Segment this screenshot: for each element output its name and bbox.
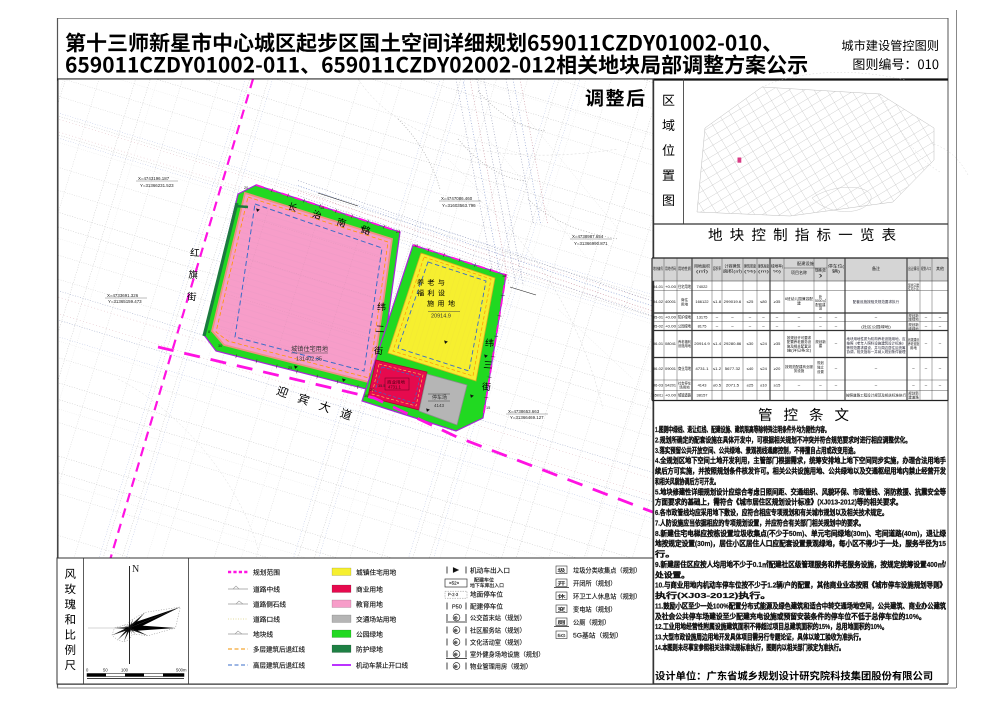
svg-text:规划人口: 规划人口: [921, 266, 931, 271]
svg-text:P·2·3: P·2·3: [448, 592, 459, 597]
svg-text:规划: 规划: [817, 360, 824, 365]
svg-text:地下车库出入口: 地下车库出入口: [470, 582, 504, 589]
svg-text:≤1.8: ≤1.8: [713, 300, 721, 304]
svg-text:高层建筑后退红线: 高层建筑后退红线: [253, 660, 306, 669]
svg-text:%): %): [773, 268, 782, 273]
svg-text:交通场站用地: 交通场站用地: [356, 614, 397, 623]
svg-text:环卫工人休息站（规划）: 环卫工人休息站（规划）: [573, 591, 641, 600]
svg-text:变: 变: [558, 606, 567, 613]
svg-text:按照《老年人照料设施建筑设计标准》: 按照《老年人照料设施建筑设计标准》: [847, 340, 906, 345]
svg-text:4143: 4143: [434, 403, 445, 408]
svg-text:Y=31366990.871: Y=31366990.871: [574, 241, 608, 246]
svg-text:100: 100: [121, 668, 129, 673]
svg-text:×52×: ×52×: [449, 581, 460, 586]
svg-text:Y=31366469.127: Y=31366469.127: [510, 415, 544, 420]
svg-text:住宅用地: 住宅用地: [678, 284, 691, 289]
svg-text:20: 20: [244, 186, 248, 190]
svg-text:35.5: 35.5: [378, 384, 385, 388]
svg-text:开闭所（规划）: 开闭所（规划）: [573, 578, 616, 587]
svg-text:用地性质: 用地性质: [678, 266, 691, 271]
svg-text:公园绿地: 公园绿地: [356, 629, 383, 638]
svg-text:多层建筑后退红线: 多层建筑后退红线: [253, 644, 306, 653]
svg-text:用地: 用地: [910, 345, 918, 350]
svg-text:38157: 38157: [697, 394, 708, 398]
svg-text:辆): 辆): [832, 268, 841, 273]
svg-text:X=4747086.460: X=4747086.460: [441, 196, 473, 201]
svg-text:社区服务站（规划）: 社区服务站（规划）: [470, 625, 526, 634]
svg-text:处设置。: 处设置。: [654, 570, 690, 579]
svg-text:+0.00: +0.00: [665, 394, 676, 398]
svg-text:X=4738987.654: X=4738987.654: [572, 234, 604, 239]
svg-text:(社区公园绿地): (社区公园绿地): [861, 324, 890, 329]
svg-text:≤25: ≤25: [747, 384, 754, 388]
svg-text:变电站（规划）: 变电站（规划）: [573, 604, 616, 613]
svg-text:用地代码: 用地代码: [665, 266, 676, 271]
svg-text:10: 10: [364, 394, 368, 398]
svg-text:8: 8: [208, 330, 210, 334]
svg-text:04-01: 04-01: [653, 285, 663, 289]
svg-text:(%): (%): [744, 268, 757, 273]
svg-text:城镇住宅用地: 城镇住宅用地: [356, 567, 397, 576]
svg-text:14.本图则未尽事宜参照相关法律法规标准执行，图则内以相关部: 14.本图则未尽事宜参照相关法律法规标准执行，图则内以相关部门核定为准执行。: [655, 643, 844, 652]
svg-text:6.各市政管线均应采用地下敷设，应符合相应专项规划和有关城市: 6.各市政管线均应采用地下敷设，应符合相应专项规划和有关城市规划以及相关技术规定…: [655, 508, 888, 517]
svg-text:50: 50: [103, 668, 108, 673]
svg-text:≥35: ≥35: [774, 300, 781, 304]
svg-text:用地: 用地: [681, 302, 689, 307]
svg-text:Y=31366231.523: Y=31366231.523: [140, 183, 174, 188]
svg-text:24: 24: [396, 230, 400, 234]
svg-text:≥20: ≥20: [774, 367, 781, 371]
svg-text:务设施: 务设施: [794, 368, 805, 373]
svg-text:29280.86: 29280.86: [724, 342, 742, 346]
svg-text:机动车禁止开口线: 机动车禁止开口线: [356, 660, 409, 669]
svg-text:城镇道路: 城镇道路: [678, 393, 691, 398]
svg-text:08041: 08041: [665, 342, 676, 346]
svg-text:教育用地: 教育用地: [356, 599, 383, 608]
svg-text:166122: 166122: [695, 300, 708, 304]
svg-text:X=4733691.326: X=4733691.326: [107, 293, 139, 298]
svg-text:≥15: ≥15: [774, 384, 781, 388]
svg-text:15: 15: [320, 206, 324, 210]
svg-text:5.地块修建性详细规划设计应综合考虑日照间距、交通组织、风貌: 5.地块修建性详细规划设计应综合考虑日照间距、交通组织、风貌环保、市政管线、消防…: [655, 487, 947, 496]
svg-text:≤30: ≤30: [747, 342, 754, 346]
svg-text:⊕: ⊕: [454, 652, 458, 658]
svg-text:06-01: 06-01: [653, 342, 663, 346]
svg-text:4731.1: 4731.1: [695, 367, 708, 371]
svg-text:行。: 行。: [654, 550, 676, 559]
svg-text:06-03: 06-03: [653, 384, 663, 388]
svg-text:6班幼儿园兼容配: 6班幼儿园兼容配: [785, 296, 814, 301]
svg-text:04-02: 04-02: [653, 300, 663, 304]
svg-text:X=4743196.187: X=4743196.187: [138, 176, 170, 181]
svg-text:10.与商业用地内机动车停车位按不少于1.2辆/户的配置，其: 10.与商业用地内机动车停车位按不少于1.2辆/户的配置，其他商业业态按照《城市…: [655, 581, 946, 590]
svg-text:8175: 8175: [698, 325, 707, 329]
svg-text:131402.35: 131402.35: [296, 357, 322, 363]
svg-text:N: N: [132, 564, 139, 575]
svg-text:(m): (m): [758, 268, 770, 273]
svg-text:停车场: 停车场: [432, 394, 447, 401]
svg-text:⊕: ⊕: [454, 640, 458, 646]
svg-text:防护绿地: 防护绿地: [356, 644, 383, 653]
svg-text:05-01: 05-01: [653, 316, 663, 320]
svg-text:其他: 其他: [936, 266, 944, 271]
svg-text:项目名称: 项目名称: [791, 270, 807, 275]
svg-text:道路中线: 道路中线: [253, 584, 281, 593]
svg-text:文化活动室（规划）: 文化活动室（规划）: [470, 637, 526, 646]
svg-text:5677.32: 5677.32: [725, 367, 740, 371]
svg-text:地块用地性质为机构养老设施用地，应: 地块用地性质为机构养老设施用地，应: [847, 336, 907, 341]
svg-text:4731.1: 4731.1: [388, 385, 401, 390]
svg-text:13.大型市政设施周边用地开发具体项目需另行专题论证，具体以: 13.大型市政设施周边用地开发具体项目需另行专题论证，具体以竣工验收为准执行。: [655, 633, 865, 642]
svg-text:659011: 659011: [653, 394, 663, 398]
svg-text:(㎡): (㎡): [696, 268, 709, 273]
svg-text:≤24: ≤24: [760, 342, 767, 346]
svg-text:配建设施: 配建设施: [797, 261, 814, 266]
svg-text:7.人防设施应当依据相应的专项规划设置，并应符合有关部门相关: 7.人防设施应当依据相应的专项规划设置，并应符合有关部门相关规划中的要求。: [655, 518, 865, 527]
svg-text:⊕: ⊕: [454, 616, 458, 622]
svg-text:建: 建: [797, 301, 801, 306]
svg-text:05-02: 05-02: [653, 325, 663, 329]
svg-text:防护绿地: 防护绿地: [678, 315, 691, 320]
svg-text:2.规划所确定的配套设施在具体开发中，可根据相关规划不冲突并: 2.规划所确定的配套设施在具体开发中，可根据相关规划不冲突并符合规范要求时进行相…: [655, 435, 911, 444]
svg-text:及社会公共停车场建设至少配建充电设施或预留安装条件的停车位不: 及社会公共停车场建设至少配建充电设施或预留安装条件的停车位不低于总停车位的10%…: [655, 612, 926, 621]
svg-text:20: 20: [370, 388, 374, 392]
svg-text:商业用地: 商业用地: [678, 366, 691, 371]
svg-text:≤0.5: ≤0.5: [713, 384, 721, 388]
svg-text:面积(㎡): 面积(㎡): [723, 268, 743, 273]
svg-text:3.落实预留公共开放空间、公共绿地、景观视线通廊控制，不得擅: 3.落实预留公共开放空间、公共绿地、景观视线通廊控制，不得擅自占用或改变用途。: [655, 446, 859, 455]
svg-text:地面停车位: 地面停车位: [470, 589, 504, 598]
svg-text:4143: 4143: [698, 384, 707, 388]
svg-text:规划范围: 规划范围: [253, 567, 280, 576]
svg-text:室外健身场地设施（规划）: 室外健身场地设施（规划）: [470, 649, 544, 658]
svg-text:+0.00: +0.00: [665, 316, 676, 320]
svg-text:≤1.2: ≤1.2: [713, 367, 721, 371]
svg-text:增绿地: 增绿地: [908, 326, 919, 331]
svg-text:≤80: ≤80: [760, 300, 767, 304]
svg-text:公交首末站（规划）: 公交首末站（规划）: [470, 613, 526, 622]
svg-text:11.鼓励小区至少一处100%配置分布式能源及绿色建筑和适合: 11.鼓励小区至少一处100%配置分布式能源及绿色建筑和适合中转交通场地空间，公…: [655, 602, 947, 611]
svg-text:设置: 设置: [817, 369, 824, 374]
svg-text:2071.5: 2071.5: [726, 384, 739, 388]
svg-text:≤1.4: ≤1.4: [713, 342, 721, 346]
svg-text:74022: 74022: [697, 285, 708, 289]
svg-text:20914.9: 20914.9: [431, 314, 451, 320]
svg-text:续后方可实施，并按照规划条件核发许可。相关公共设施用地、公共: 续后方可实施，并按照规划条件核发许可。相关公共设施用地、公共绿地以及交通枢纽用地…: [655, 467, 947, 476]
svg-text:≤10: ≤10: [760, 384, 767, 388]
svg-text:物业管理用房（规划）: 物业管理用房（规划）: [470, 661, 532, 670]
svg-text:≤24: ≤24: [760, 367, 767, 371]
svg-text:9.新建居住区应按人均用地不少于0.1㎡配建社区级管理服务和: 9.新建居住区应按人均用地不少于0.1㎡配建社区级管理服务和养老服务设施，按规定…: [655, 560, 946, 569]
svg-text:15: 15: [486, 406, 490, 410]
svg-text:299019.6: 299019.6: [724, 300, 742, 304]
svg-text:≤25: ≤25: [747, 300, 754, 304]
svg-text:20914.9: 20914.9: [694, 342, 709, 346]
svg-text:备注: 备注: [872, 266, 880, 271]
svg-text:13175: 13175: [697, 316, 708, 320]
svg-text:≤40: ≤40: [747, 367, 754, 371]
svg-text:06-02: 06-02: [653, 367, 663, 371]
svg-text:和相关风貌协调后方可开发。: 和相关风貌协调后方可开发。: [654, 477, 719, 486]
svg-text:道路口线: 道路口线: [253, 614, 281, 623]
svg-text:等规范要求建设，并与周边居住区统筹: 等规范要求建设，并与周边居住区统筹: [847, 345, 907, 350]
svg-text:协调，相关指标一并纳入规划条件管理: 协调，相关指标一并纳入规划条件管理: [847, 349, 907, 354]
svg-text:X=4738653.663: X=4738653.663: [508, 409, 540, 414]
svg-text:5G基站（规划）: 5G基站（规划）: [573, 630, 623, 639]
svg-text:1.图则中绿线、退让红线、配建设施、建筑限高等除特殊注明条件: 1.图则中绿线、退让红线、配建设施、建筑限高等除特殊注明条件外均为刚性内容。: [655, 425, 830, 434]
svg-text:方面要求的基础上，需符合《城市居住区规划设计标准》(XJ01: 方面要求的基础上，需符合《城市居住区规划设计标准》(XJ013-2012)等的相…: [655, 498, 902, 507]
svg-text:12: 12: [414, 244, 418, 248]
svg-text:⊕: ⊕: [454, 664, 458, 670]
svg-text:住宅小区: 住宅小区: [908, 286, 919, 291]
svg-text:12.工业用地经营性附属设施建筑面积不得超过项目总建筑面积的: 12.工业用地经营性附属设施建筑面积不得超过项目总建筑面积的15%，总用地面积的…: [655, 622, 888, 631]
svg-text:4.全规划区地下空间土地开发利用，主管部门根据需求，统筹安排: 4.全规划区地下空间土地开发利用，主管部门根据需求，统筹安排地上地下空间同步实施…: [655, 456, 947, 465]
svg-text:独立: 独立: [817, 365, 824, 370]
svg-text:出让情况: 出让情况: [908, 266, 919, 271]
svg-text:5G: 5G: [558, 633, 567, 638]
svg-text:8.新建住宅电梯应按栋设置垃圾收集点(不少于50m)、单元宅: 8.新建住宅电梯应按栋设置垃圾收集点(不少于50m)、单元宅间绿地(30m)、宅…: [655, 529, 947, 538]
svg-text:18: 18: [502, 274, 506, 278]
svg-text:配套设施按相关规范要求执行: 配套设施按相关规范要求执行: [853, 299, 900, 304]
svg-text:地块编号: 地块编号: [653, 266, 663, 271]
svg-text:商住: 商住: [681, 297, 689, 302]
svg-text:容积率: 容积率: [713, 266, 721, 271]
svg-text:建道路: 建道路: [908, 394, 919, 399]
svg-text:道路侧石线: 道路侧石线: [253, 599, 287, 608]
svg-text:⊕: ⊕: [454, 628, 458, 634]
svg-text:场用地: 场用地: [679, 385, 690, 390]
svg-text:配建车位: 配建车位: [474, 577, 494, 584]
svg-text:机动车出入口: 机动车出入口: [470, 565, 510, 574]
svg-text:城镇住宅用地: 城镇住宅用地: [291, 345, 328, 353]
svg-text:设施用地: 设施用地: [678, 343, 691, 348]
svg-text:40001: 40001: [665, 300, 676, 304]
svg-text:S4201: S4201: [665, 384, 676, 388]
svg-text:公园绿地: 公园绿地: [678, 324, 691, 329]
svg-text:500m: 500m: [176, 668, 187, 673]
svg-text:25: 25: [288, 366, 292, 370]
svg-text:配建停车位: 配建停车位: [470, 601, 504, 610]
svg-text:+0.00: +0.00: [665, 325, 676, 329]
svg-text:+0.00: +0.00: [665, 285, 676, 289]
svg-text:09001: 09001: [665, 367, 676, 371]
svg-text:施(详见条文): 施(详见条文): [787, 348, 811, 353]
svg-text:商业用地: 商业用地: [356, 584, 383, 593]
svg-text:公厕（规划）: 公厕（规划）: [573, 617, 610, 626]
svg-text:圾: 圾: [558, 567, 567, 574]
svg-text:Y=31365159.473: Y=31365159.473: [108, 299, 142, 304]
svg-text:地按规定设置(30m)，居住小区居住人口应配套设置景观绿地，: 地按规定设置(30m)，居住小区居住人口应配套设置景观绿地，每小区不得少于一处，…: [655, 539, 946, 548]
svg-text:≥35: ≥35: [774, 342, 781, 346]
svg-text:垃圾分类收集点（规划）: 垃圾分类收集点（规划）: [573, 565, 641, 574]
svg-text:P50: P50: [452, 604, 462, 610]
svg-text:按照道路工程设计规范及相关标准执行: 按照道路工程设计规范及相关标准执行: [846, 393, 907, 398]
svg-text:地块线: 地块线: [253, 629, 274, 638]
svg-text:休: 休: [558, 593, 567, 600]
svg-text:执行(XJ03-2012)执行。: 执行(XJ03-2012)执行。: [655, 591, 771, 600]
svg-text:30: 30: [218, 344, 222, 348]
svg-text:Y=31603563.796: Y=31603563.796: [442, 203, 476, 208]
svg-text:增绿地: 增绿地: [908, 317, 919, 322]
